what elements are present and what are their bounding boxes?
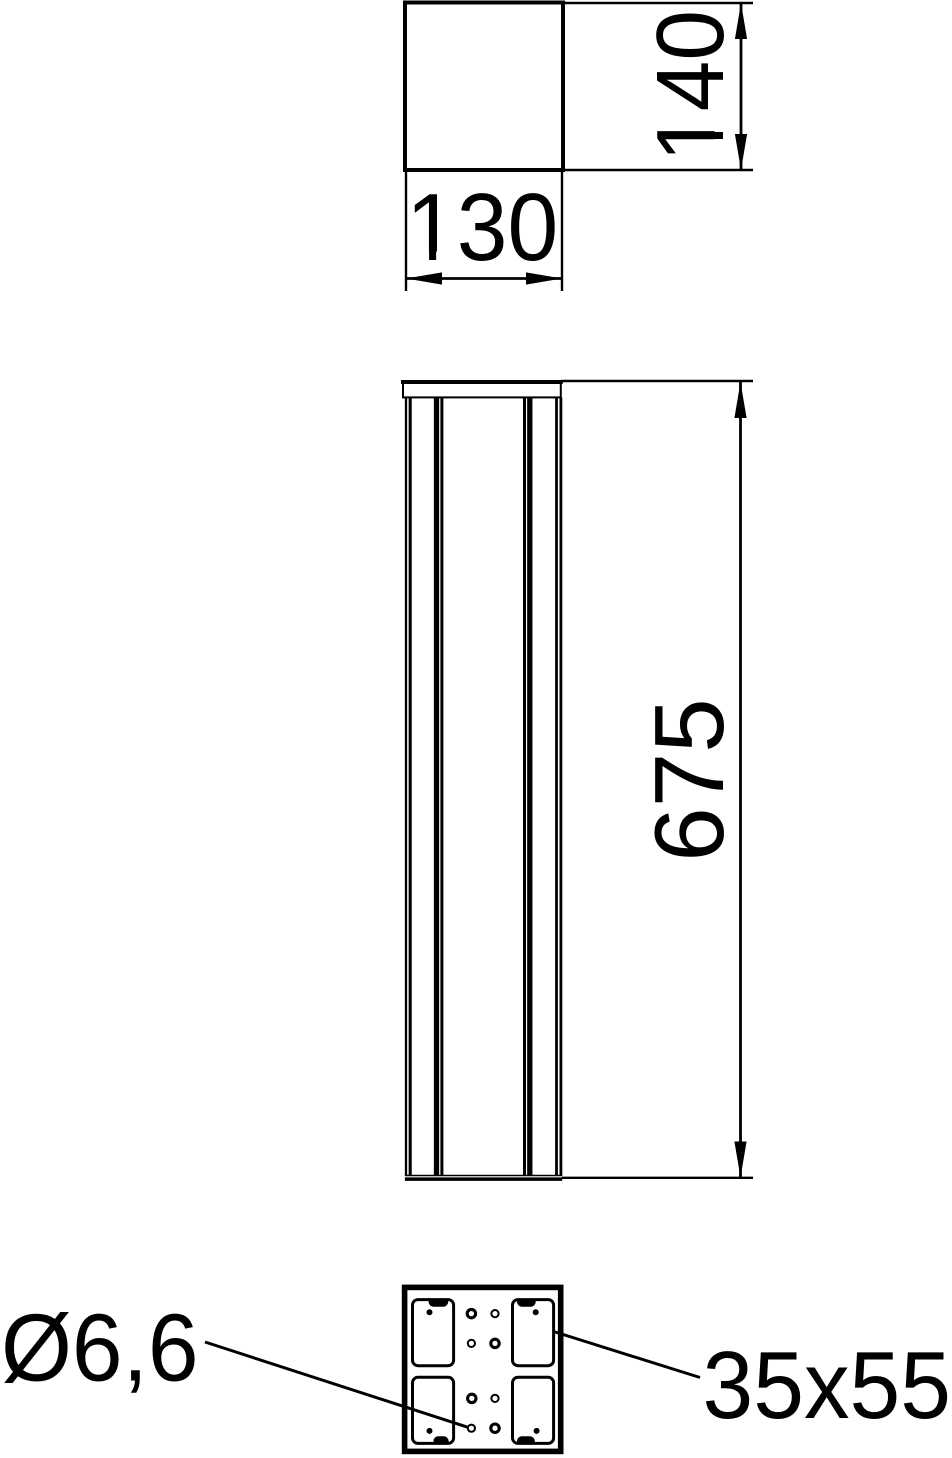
svg-text:Ø6,6: Ø6,6 xyxy=(1,1293,199,1401)
svg-text:140: 140 xyxy=(636,10,744,162)
svg-text:675: 675 xyxy=(634,698,744,862)
svg-text:35x55: 35x55 xyxy=(703,1331,951,1439)
svg-text:130: 130 xyxy=(406,173,558,281)
